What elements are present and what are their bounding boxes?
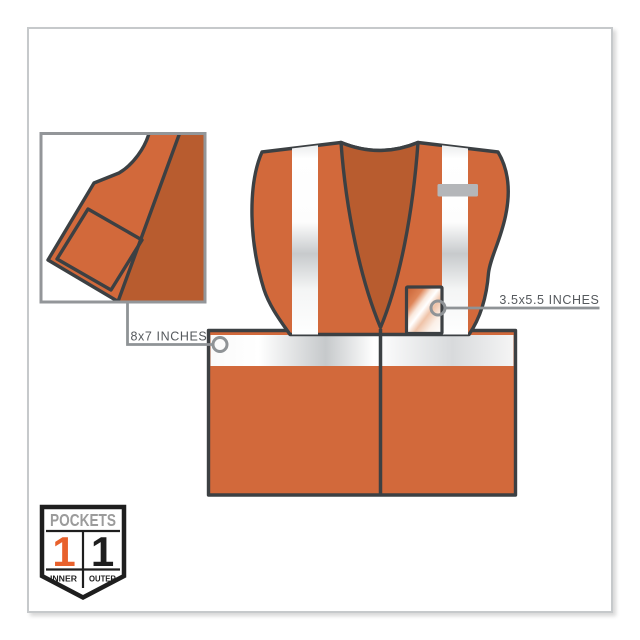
badge-inner-label: INNER	[50, 575, 77, 584]
badge-outer-count: 1	[91, 528, 114, 575]
badge-title: POCKETS	[50, 510, 116, 530]
badge-inner-count: 1	[52, 528, 75, 575]
safety-vest	[209, 139, 516, 495]
inner-pocket-inset	[41, 129, 208, 304]
callout-inner-pocket: 8x7 INCHES	[128, 303, 228, 352]
badge-outer-label: OUTER	[89, 575, 116, 584]
reflective-stripe-left-shoulder	[292, 139, 318, 337]
product-diagram: 8x7 INCHES 3.5x5.5 INCHES POCKETS 1 1 IN…	[0, 0, 640, 640]
id-pocket-size-label: 3.5x5.5 INCHES	[499, 293, 599, 307]
vest-feature-illustration: 8x7 INCHES 3.5x5.5 INCHES POCKETS 1 1 IN…	[0, 0, 640, 640]
mic-tab	[438, 184, 479, 197]
id-pocket-window	[407, 287, 443, 334]
reflective-stripe-horizontal	[211, 335, 514, 366]
pockets-count-badge: POCKETS 1 1 INNER OUTER	[42, 507, 124, 598]
inner-pocket-size-label: 8x7 INCHES	[131, 330, 208, 344]
